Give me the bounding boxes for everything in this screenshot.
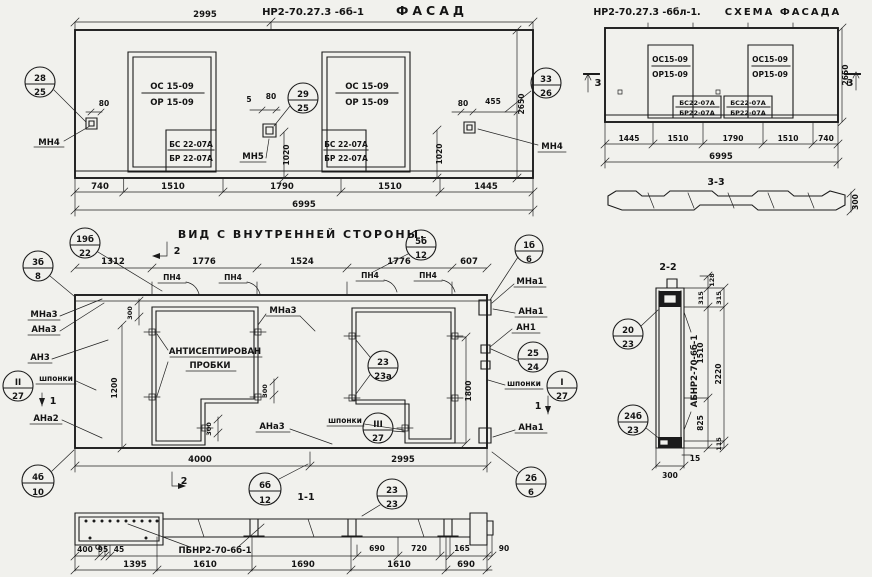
facade-dim-80-right: 80 (458, 99, 468, 108)
callout-top: III (373, 420, 383, 430)
callout-bottom: 23 (622, 340, 634, 350)
callout-bottom: 23 (627, 426, 639, 436)
callout-top: 6б (259, 480, 271, 491)
inner-callout-3b-8: 3б 8 (23, 251, 53, 282)
section-1-1-label: 1-1 (297, 492, 314, 503)
callout-bottom: 12 (259, 496, 271, 506)
schema-section-arrows (585, 72, 859, 92)
inner-ana3-left: АНа3 (31, 325, 56, 335)
section-2-2-dim-315a: 315 (697, 291, 705, 305)
section-1-1-left-block (75, 513, 163, 545)
schema-win1-br: БР22-07А (679, 109, 715, 117)
section-1-1-callout-23-23: 23 23 (377, 479, 407, 510)
inner-shponki-mid: шпонки (328, 416, 362, 425)
callout-bottom: 27 (556, 392, 568, 402)
schema-dim-1445: 1445 (619, 134, 640, 143)
section-2-2-label: 2-2 (659, 262, 676, 273)
facade-dim-1790: 1790 (270, 182, 294, 192)
section-2-2-dim-128: 128 (708, 273, 716, 287)
facade-win2-br: БР 22-07А (324, 154, 368, 163)
schema-dim-total: 6995 (709, 152, 733, 162)
section-2-2-callout-20-23: 20 23 (613, 319, 643, 350)
section-2-2-dim-2220: 2220 (714, 364, 723, 385)
callout-top: 3б (32, 257, 44, 268)
s11-dim-1610b: 1610 (387, 560, 411, 570)
inner-section1-right-label: 1 (535, 401, 542, 412)
inner-connector-marks (144, 329, 463, 431)
inner-an3: АН3 (30, 353, 50, 363)
inner-mna3-left: МНа3 (30, 310, 57, 320)
inner-pn4-label-2: ПН4 (224, 273, 242, 282)
facade-dim-total: 6995 (292, 200, 316, 210)
s11-dim-690b: 690 (457, 560, 475, 570)
section-1-1-ribs (244, 519, 458, 536)
inner-edge-connectors (479, 300, 491, 443)
facade-dim-1510a: 1510 (161, 182, 185, 192)
section-2-2-base-notch (660, 440, 668, 445)
inner-callout-6b-12: 6б 12 (249, 473, 281, 506)
schema-title: СХЕМА ФАСАДА (725, 7, 841, 18)
section-2-2-callout-24b-23: 24б 23 (618, 405, 648, 436)
schema-code: НР2-70.27.3 -6бл-1. (593, 7, 700, 18)
inner-openings-linework (152, 307, 455, 445)
section-2-2-dim-300: 300 (662, 471, 678, 480)
s11-dim-95: 95 (98, 545, 108, 554)
inner-dim-1800: 1800 (464, 381, 473, 402)
panel-drawing-svg: 2995 НР2-70.27.3 -6б-1 ФАСАД ОС 15-09 ОР… (0, 0, 872, 577)
inner-antiseptic-line2: ПРОБКИ (189, 361, 230, 371)
facade-win1-os: ОС 15-09 (150, 82, 194, 92)
schema-win2-os: ОС15-09 (752, 55, 788, 64)
facade-dim-80-mid: 80 (266, 92, 276, 101)
schema-view: НР2-70.27.3 -6бл-1. СХЕМА ФАСАДА 3 3 ОС1… (584, 7, 860, 215)
facade-dim-5: 5 (246, 95, 251, 104)
inner-mna3-mid: МНа3 (269, 306, 296, 316)
callout-top: 19б (76, 234, 94, 245)
callout-top: 5б (415, 236, 427, 247)
schema-win1-bs: БС22-07А (679, 99, 715, 107)
schema-dim-1510a: 1510 (668, 134, 689, 143)
drawing-sheet: 2995 НР2-70.27.3 -6б-1 ФАСАД ОС 15-09 ОР… (0, 0, 872, 577)
inner-dim-300a: 300 (126, 306, 134, 320)
schema-dim-1790: 1790 (723, 134, 744, 143)
inner-pn4-label-4: ПН4 (419, 271, 437, 280)
facade-top-dim: 2995 (193, 10, 217, 20)
callout-bottom: 24 (527, 363, 539, 373)
facade-callout-28-25: 28 25 (25, 67, 55, 98)
inner-callout-4b-10: 4б 10 (22, 465, 54, 498)
facade-win1-br: БР 22-07А (169, 154, 213, 163)
facade-dim-740: 740 (91, 182, 109, 192)
inner-dim-4000: 4000 (188, 455, 212, 465)
schema-win2-or: ОР15-09 (752, 70, 788, 79)
section-3-3-dim-300: 300 (851, 194, 860, 210)
schema-section-left-label: 3 (595, 78, 602, 89)
inner-pn4-leaders (158, 280, 455, 294)
facade-mn5-label: МН5 (242, 152, 264, 162)
facade-win2-bs: БС 22-07А (324, 140, 368, 149)
callout-bottom: 12 (415, 251, 427, 261)
section-1-1-view: 1-1 ПБНР2-70-6б-1 23 23 400 95 45 690 72… (71, 479, 509, 574)
facade-dim-1020-right: 1020 (435, 144, 444, 165)
section-3-3-label: 3-3 (707, 177, 724, 188)
callout-bottom: 22 (79, 249, 91, 259)
callout-top: 24б (624, 411, 642, 422)
section-2-2-lintel-slot (664, 295, 676, 303)
s11-dim-45: 45 (114, 545, 124, 554)
section-3-3-joints (648, 189, 855, 215)
callout-bottom: 6 (528, 488, 534, 498)
s11-dim-400: 400 (77, 545, 93, 554)
callout-bottom: 23а (374, 372, 392, 382)
inner-pn4-label-1: ПН4 (163, 273, 181, 282)
schema-win1-os: ОС15-09 (652, 55, 688, 64)
section-2-2-dim-1510: 1510 (696, 343, 705, 364)
inner-callout-23-23a: 23 23а (368, 351, 398, 382)
schema-win2-br: БР22-07А (730, 109, 766, 117)
inner-pn4-label-3: ПН4 (361, 271, 379, 280)
facade-win2-os: ОС 15-09 (345, 82, 389, 92)
facade-dim-1510b: 1510 (378, 182, 402, 192)
s11-dim-1395: 1395 (123, 560, 147, 570)
callout-bottom: 27 (372, 434, 384, 444)
inner-shponki-left: шпонки (39, 374, 73, 383)
inner-callout-19b-22: 19б 22 (70, 228, 100, 259)
inner-ana1-bottom: АНа1 (518, 423, 543, 433)
inner-callout-III-27: III 27 (363, 413, 393, 444)
inner-dim-607: 607 (460, 257, 478, 267)
s11-dim-690a: 690 (369, 544, 385, 553)
inner-callout-II-27: II 27 (3, 371, 33, 402)
callout-bottom: 10 (32, 488, 44, 498)
schema-dim-1510b: 1510 (778, 134, 799, 143)
inner-dim-1200: 1200 (110, 378, 119, 399)
facade-win1-bs: БС 22-07А (169, 140, 213, 149)
callout-bottom: 8 (35, 272, 41, 282)
inner-section-arrowheads (39, 253, 551, 489)
section-2-2-view: 2-2 АБНР2-70-6б-1 128 315 315 1510 2220 … (613, 262, 728, 480)
section-1-1-leaders (128, 505, 380, 547)
inner-section2-top-label: 2 (174, 246, 181, 257)
facade-win1-or: ОР 15-09 (150, 98, 194, 108)
facade-code: НР2-70.27.3 -6б-1 (262, 6, 364, 18)
s11-dim-90: 90 (499, 544, 509, 553)
section-3-3-profile (608, 191, 845, 210)
callout-top: 2б (525, 473, 537, 484)
callout-bottom: 6 (526, 255, 532, 265)
facade-win2-or: ОР 15-09 (345, 98, 389, 108)
facade-dim-1445: 1445 (474, 182, 498, 192)
inner-dim-1776b: 1776 (387, 257, 411, 267)
inner-callout-I-27: I 27 (547, 371, 577, 402)
facade-view: 2995 НР2-70.27.3 -6б-1 ФАСАД ОС 15-09 ОР… (25, 3, 566, 216)
facade-dim-1020-mid: 1020 (282, 145, 291, 166)
callout-top: 33 (540, 75, 552, 85)
inner-title: ВИД С ВНУТРЕННЕЙ СТОРОНЫ. (178, 228, 426, 241)
facade-callout-29-25: 29 25 (288, 83, 318, 114)
facade-dim-2650: 2650 (517, 94, 526, 115)
section-2-2-dim-315b: 315 (715, 291, 723, 305)
inner-leader-lines (28, 252, 547, 479)
callout-top: 4б (32, 472, 44, 483)
facade-dimension-lines (71, 18, 537, 216)
section-1-1-joints (198, 519, 424, 537)
facade-anchor-plates (86, 118, 475, 137)
callout-bottom: 23 (386, 500, 398, 510)
callout-top: 29 (297, 90, 309, 100)
section-2-2-dim-825: 825 (696, 415, 705, 431)
schema-dim-2650: 2650 (841, 65, 850, 86)
inner-an1: АН1 (516, 323, 536, 333)
inner-callout-1b-6: 1б 6 (515, 235, 543, 265)
inner-dim-1524: 1524 (290, 257, 314, 267)
callout-bottom: 25 (34, 88, 46, 98)
facade-dim-455: 455 (485, 97, 501, 106)
schema-win2-bs: БС22-07А (730, 99, 766, 107)
callout-bottom: 27 (12, 392, 24, 402)
callout-top: 28 (34, 74, 46, 84)
inner-callout-25-24: 25 24 (518, 342, 548, 373)
inner-dim-300c: 300 (205, 422, 213, 436)
facade-callout-33-26: 33 26 (531, 68, 561, 99)
inner-section2-bottom-label: 2 (181, 476, 188, 487)
schema-win1-or: ОР15-09 (652, 70, 688, 79)
inner-ana2: АНа2 (33, 414, 58, 424)
callout-top: 23 (377, 358, 389, 368)
section-2-2-dim-115: 115 (715, 437, 723, 451)
inner-ana1-top: АНа1 (518, 307, 543, 317)
inner-mna1: МНа1 (516, 277, 543, 287)
s11-dim-165: 165 (454, 544, 470, 553)
inner-dim-1776a: 1776 (192, 257, 216, 267)
inner-callout-2b-6: 2б 6 (516, 467, 546, 498)
callout-bottom: 26 (540, 89, 552, 99)
facade-title: ФАСАД (396, 3, 468, 18)
callout-top: 20 (622, 326, 634, 336)
inner-section1-left-label: 1 (50, 396, 57, 407)
section-2-2-callout-leaders (641, 310, 660, 439)
facade-dim-80-left: 80 (99, 99, 109, 108)
facade-mn4-left-label: МН4 (38, 138, 60, 148)
callout-bottom: 25 (297, 104, 309, 114)
inner-shponki-right: шпонки (507, 379, 541, 388)
section-1-1-beam-code: ПБНР2-70-6б-1 (178, 545, 251, 556)
callout-top: 23 (386, 486, 398, 496)
facade-mn4-right-label: МН4 (541, 142, 563, 152)
callout-top: I (560, 378, 563, 388)
inner-view: ВИД С ВНУТРЕННЕЙ СТОРОНЫ. 1312 1776 1524… (3, 228, 577, 506)
schema-dim-740: 740 (818, 134, 834, 143)
s11-dim-720: 720 (411, 544, 427, 553)
inner-dim-2995: 2995 (391, 455, 415, 465)
s11-dim-1610a: 1610 (193, 560, 217, 570)
callout-top: 1б (523, 240, 535, 251)
callout-top: II (15, 378, 21, 388)
inner-ana3-mid: АНа3 (259, 422, 284, 432)
inner-dim-1312: 1312 (101, 257, 125, 267)
inner-dim-300b: 300 (261, 384, 269, 398)
inner-antiseptic-line1: АНТИСЕПТИРОВАН (169, 347, 261, 357)
callout-top: 25 (527, 349, 539, 359)
s11-dim-1690: 1690 (291, 560, 315, 570)
section-2-2-dim-15: 15 (690, 454, 700, 463)
